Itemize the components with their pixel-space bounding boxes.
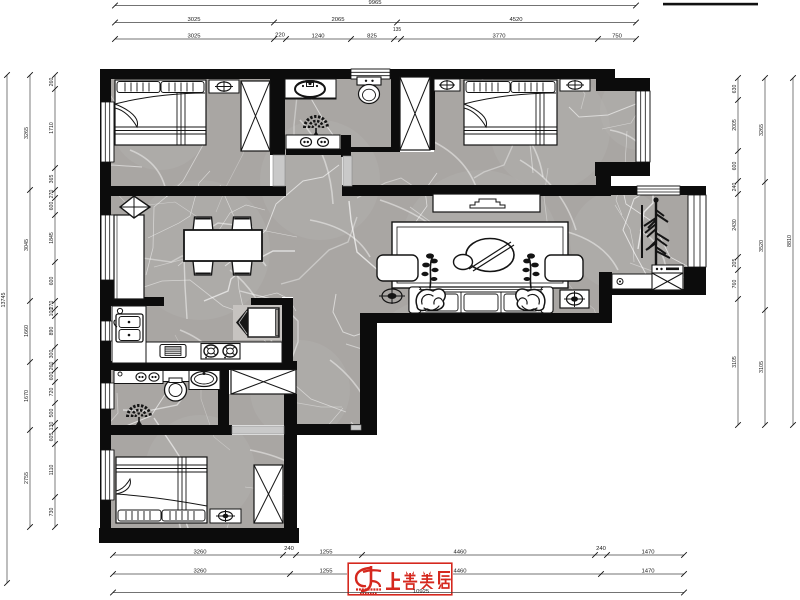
svg-text:1110: 1110 [49,465,55,476]
svg-text:500: 500 [49,409,55,418]
svg-text:4460: 4460 [453,569,467,575]
svg-text:760: 760 [732,280,738,289]
svg-text:630: 630 [732,85,738,94]
svg-text:1240: 1240 [311,34,325,40]
svg-text:3025: 3025 [187,34,201,40]
svg-text:1845: 1845 [49,232,55,244]
svg-text:10925: 10925 [413,589,430,595]
svg-text:135: 135 [393,27,402,33]
svg-text:1255: 1255 [319,550,333,556]
svg-text:3105: 3105 [732,356,738,368]
svg-text:3265: 3265 [759,124,765,136]
svg-text:205: 205 [732,259,738,268]
svg-text:260: 260 [49,362,55,371]
svg-text:4520: 4520 [509,17,523,23]
svg-text:4460: 4460 [453,550,467,556]
svg-text:130: 130 [49,422,55,431]
svg-text:3260: 3260 [193,550,207,556]
svg-text:3265: 3265 [24,127,30,139]
svg-text:3045: 3045 [24,239,30,251]
svg-text:240: 240 [732,183,738,192]
svg-text:600: 600 [49,277,55,286]
svg-text:240: 240 [596,546,607,552]
svg-text:1660: 1660 [24,325,30,337]
svg-text:100: 100 [49,308,55,317]
svg-text:600: 600 [49,372,55,381]
svg-text:825: 825 [367,34,378,40]
svg-text:3105: 3105 [759,361,765,373]
svg-text:1470: 1470 [641,569,655,575]
svg-text:1670: 1670 [24,390,30,402]
svg-text:3520: 3520 [759,240,765,252]
svg-text:600: 600 [732,162,738,171]
svg-text:1470: 1470 [641,550,655,556]
svg-text:300: 300 [49,350,55,359]
svg-text:3025: 3025 [187,17,201,23]
svg-text:730: 730 [49,508,55,517]
svg-text:2005: 2005 [732,119,738,131]
svg-text:3770: 3770 [492,34,506,40]
svg-text:750: 750 [612,34,623,40]
svg-text:1710: 1710 [49,122,55,134]
svg-text:2065: 2065 [331,17,345,23]
svg-text:720: 720 [49,388,55,397]
svg-text:240: 240 [284,546,295,552]
svg-text:605: 605 [49,433,55,442]
svg-text:270: 270 [49,190,55,199]
svg-text:1255: 1255 [319,569,333,575]
svg-text:600: 600 [49,202,55,211]
svg-text:260: 260 [49,78,55,87]
svg-text:8810: 8810 [787,235,793,247]
svg-text:9965: 9965 [368,0,382,6]
svg-text:220: 220 [275,33,286,39]
svg-text:365: 365 [49,175,55,184]
svg-text:2430: 2430 [732,219,738,231]
svg-text:3260: 3260 [193,569,207,575]
svg-text:13745: 13745 [1,293,7,308]
svg-text:2755: 2755 [24,472,30,484]
svg-text:890: 890 [49,327,55,336]
